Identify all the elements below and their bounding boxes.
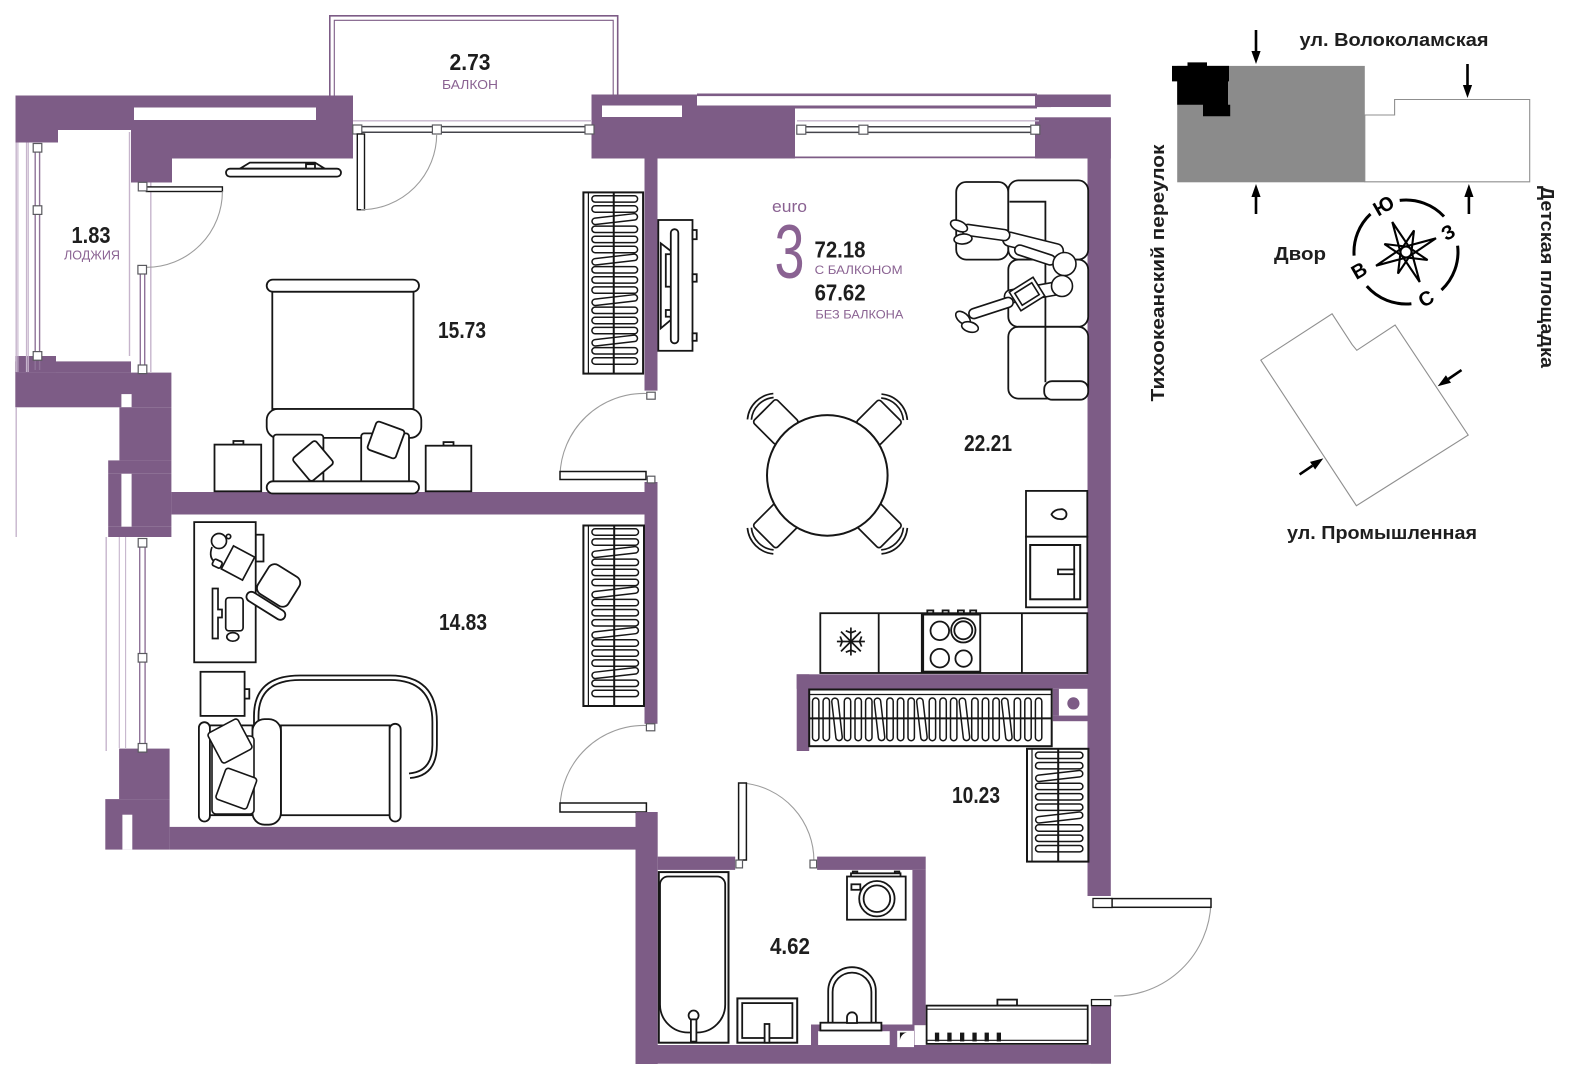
svg-text:3: 3 xyxy=(775,210,805,295)
svg-text:14.83: 14.83 xyxy=(439,609,487,635)
svg-text:10.23: 10.23 xyxy=(952,782,1000,808)
svg-text:67.62: 67.62 xyxy=(815,280,866,306)
svg-text:4.62: 4.62 xyxy=(770,933,810,959)
svg-text:2.73: 2.73 xyxy=(450,49,491,75)
svg-text:ул. Волоколамская: ул. Волоколамская xyxy=(1300,29,1489,50)
svg-text:Детская площадка: Детская площадка xyxy=(1537,186,1558,369)
svg-text:22.21: 22.21 xyxy=(964,430,1012,456)
svg-text:ЛОДЖИЯ: ЛОДЖИЯ xyxy=(64,249,120,263)
svg-text:1.83: 1.83 xyxy=(72,222,111,248)
svg-text:72.18: 72.18 xyxy=(815,237,866,263)
svg-text:Двор: Двор xyxy=(1274,243,1326,264)
svg-text:15.73: 15.73 xyxy=(438,317,486,343)
svg-text:С БАЛКОНОМ: С БАЛКОНОМ xyxy=(815,263,903,277)
svg-text:БАЛКОН: БАЛКОН xyxy=(442,78,498,92)
svg-text:ул. Промышленная: ул. Промышленная xyxy=(1287,522,1477,543)
svg-text:Тихоокеанский переулок: Тихоокеанский переулок xyxy=(1147,144,1168,402)
svg-text:БЕЗ БАЛКОНА: БЕЗ БАЛКОНА xyxy=(815,307,903,321)
